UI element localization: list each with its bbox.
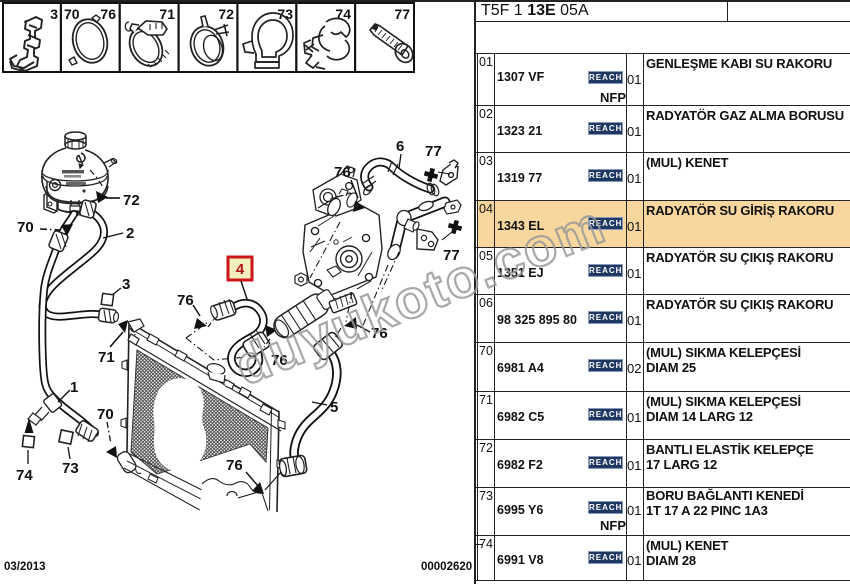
svg-text:4: 4 (236, 261, 245, 278)
svg-text:70: 70 (97, 406, 114, 423)
svg-text:72: 72 (218, 6, 234, 22)
svg-text:03/2013: 03/2013 (4, 561, 46, 573)
svg-text:71: 71 (159, 6, 175, 22)
svg-text:74: 74 (16, 467, 33, 484)
svg-text:77: 77 (394, 6, 410, 22)
svg-text:76: 76 (371, 325, 388, 342)
svg-text:77: 77 (425, 143, 442, 160)
svg-text:72: 72 (123, 192, 140, 209)
svg-text:3: 3 (122, 276, 130, 293)
svg-text:2: 2 (126, 225, 134, 242)
svg-text:76: 76 (177, 292, 194, 309)
svg-text:6: 6 (396, 138, 404, 155)
svg-text:00002620: 00002620 (421, 561, 472, 573)
svg-text:3: 3 (50, 6, 58, 22)
svg-text:77: 77 (443, 247, 460, 264)
svg-text:5: 5 (330, 399, 338, 416)
svg-text:76: 76 (334, 164, 351, 181)
svg-text:71: 71 (98, 349, 115, 366)
svg-text:76: 76 (100, 6, 116, 22)
svg-text:73: 73 (62, 460, 79, 477)
svg-text:1: 1 (70, 379, 78, 396)
svg-text:76: 76 (271, 352, 288, 369)
svg-text:76: 76 (226, 457, 243, 474)
svg-text:70: 70 (17, 219, 34, 236)
svg-text:70: 70 (64, 6, 80, 22)
